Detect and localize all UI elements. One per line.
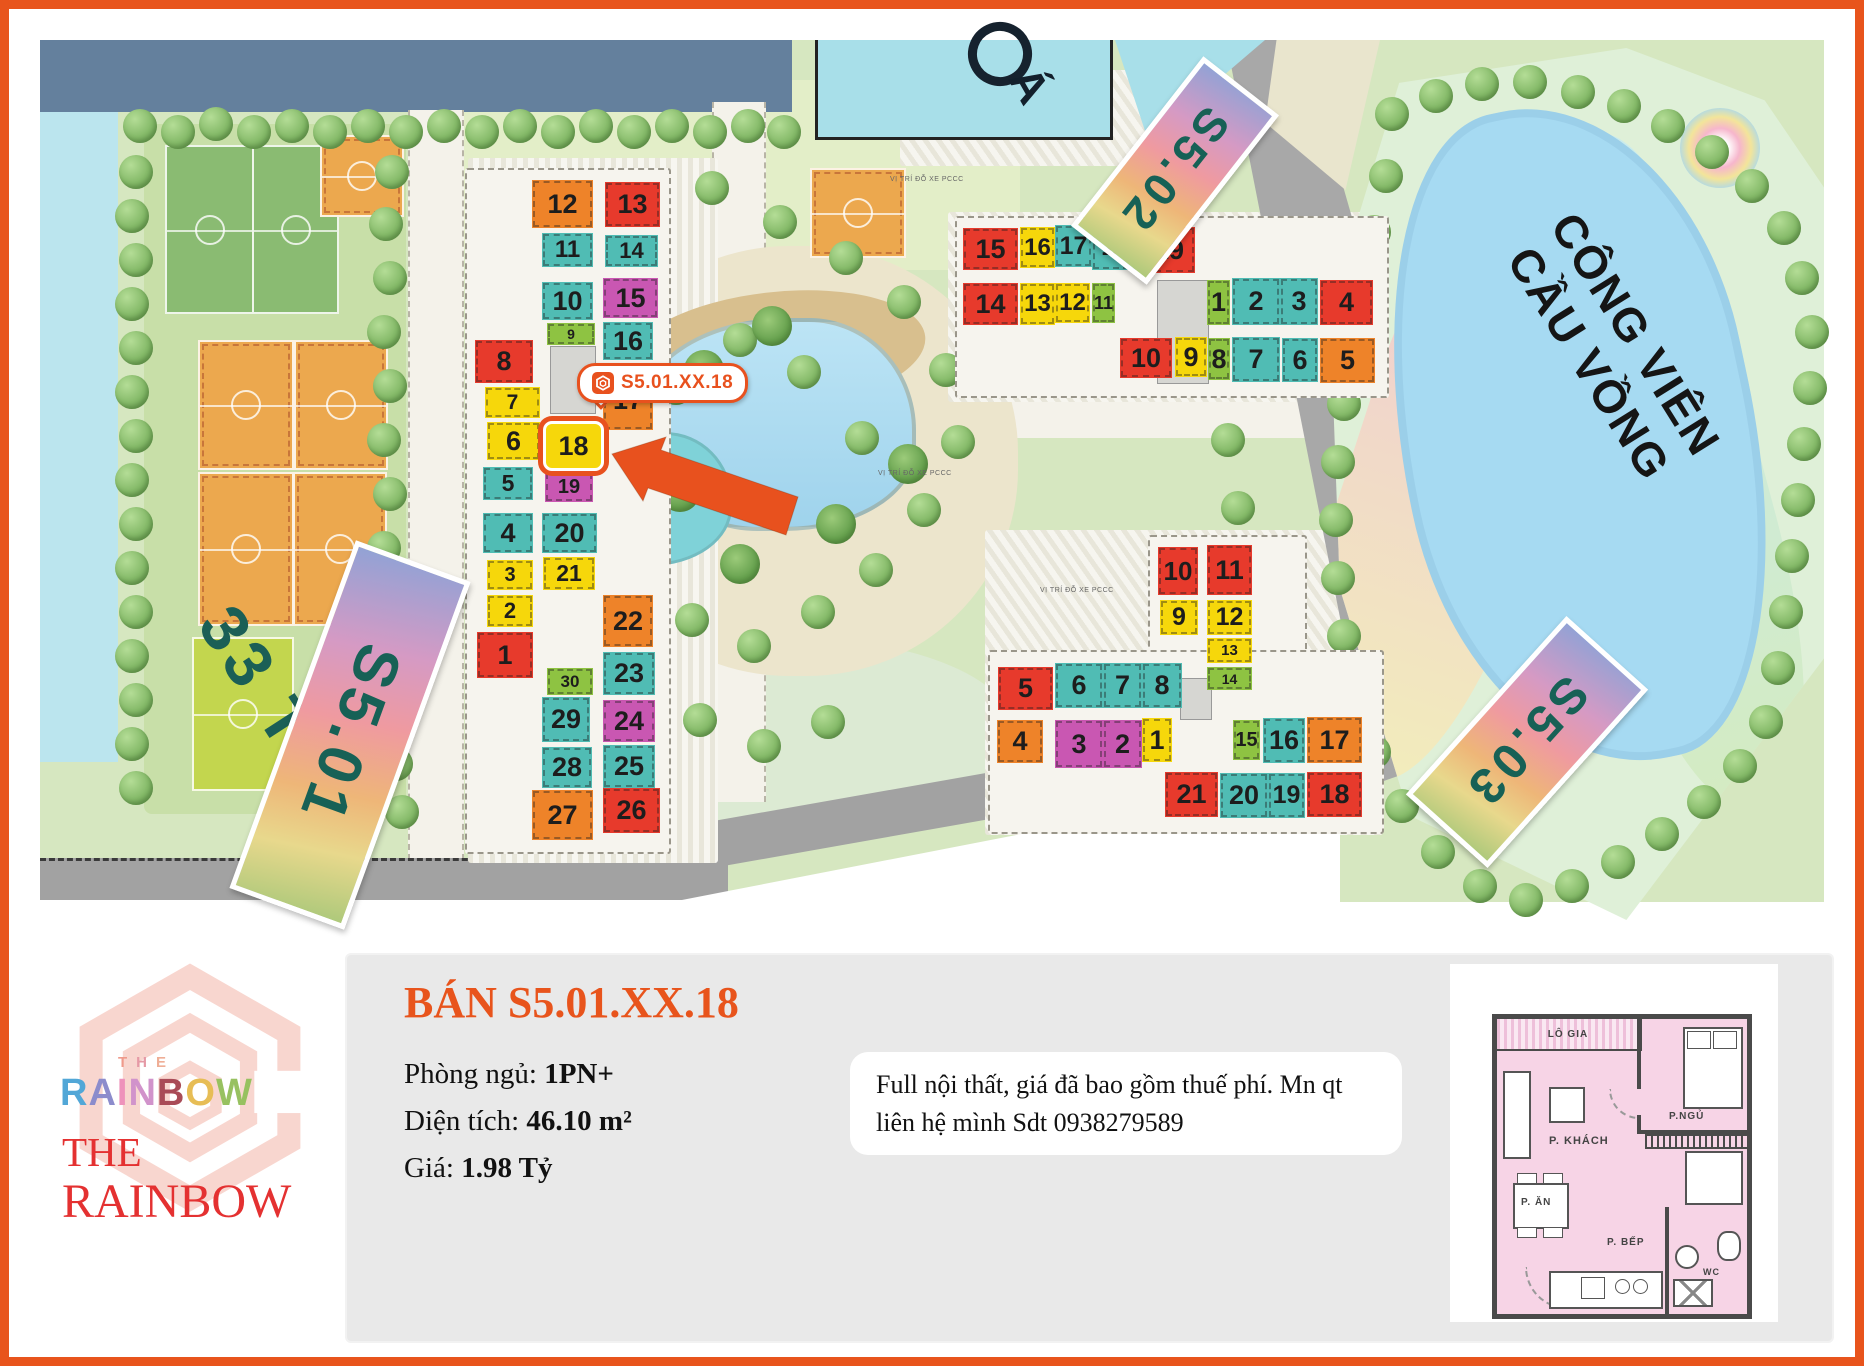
tree-icon	[1749, 705, 1783, 739]
tree-icon	[1421, 835, 1455, 869]
unit-S5.03-13[interactable]: 13	[1207, 638, 1252, 663]
listing-description: Full nội thất, giá đã bao gồm thuế phí. …	[850, 1052, 1402, 1155]
tree-icon	[1793, 371, 1827, 405]
tree-icon	[829, 241, 863, 275]
unit-S5.03-1[interactable]: 1	[1142, 718, 1172, 762]
unit-S5.01-8[interactable]: 8	[475, 340, 533, 383]
tree-icon	[1463, 869, 1497, 903]
wash-basin	[1675, 1245, 1699, 1269]
unit-S5.01-12[interactable]: 12	[532, 180, 593, 228]
tree-icon	[119, 243, 153, 277]
unit-S5.03-19[interactable]: 19	[1268, 773, 1305, 818]
pillow	[1687, 1031, 1711, 1049]
tree-icon	[1221, 491, 1255, 525]
spec-line: Giá: 1.98 Tỷ	[404, 1145, 632, 1192]
tree-icon	[115, 287, 149, 321]
shower-area	[1673, 1279, 1713, 1307]
room-label-living: P. KHÁCH	[1549, 1135, 1609, 1147]
tree-icon	[373, 261, 407, 295]
tree-icon	[1787, 427, 1821, 461]
tree-icon	[119, 419, 153, 453]
tree-icon	[1319, 503, 1353, 537]
tree-icon	[845, 421, 879, 455]
unit-S5.02-14[interactable]: 14	[963, 283, 1018, 325]
tree-icon	[237, 115, 271, 149]
unit-S5.01-6[interactable]: 6	[487, 422, 540, 460]
tree-icon	[369, 207, 403, 241]
unit-S5.01-16[interactable]: 16	[603, 322, 653, 360]
tree-icon	[579, 109, 613, 143]
pointer-arrow-icon	[602, 430, 802, 540]
tree-icon	[427, 109, 461, 143]
spec-value: 1.98 Tỷ	[461, 1152, 552, 1184]
tree-icon	[1761, 651, 1795, 685]
unit-S5.01-5[interactable]: 5	[483, 467, 533, 500]
unit-S5.03-9[interactable]: 9	[1160, 600, 1198, 635]
tree-icon	[1321, 445, 1355, 479]
tree-icon	[503, 109, 537, 143]
bottom-road	[40, 858, 728, 905]
unit-S5.01-4[interactable]: 4	[483, 513, 533, 553]
unit-S5.03-5[interactable]: 5	[998, 667, 1053, 710]
unit-S5.02-1[interactable]: 1	[1207, 280, 1230, 325]
tree-icon	[313, 115, 347, 149]
coffee-table	[1549, 1087, 1585, 1123]
tree-icon	[1767, 211, 1801, 245]
tree-icon	[115, 199, 149, 233]
sofa	[1503, 1071, 1531, 1159]
logo-letter: N	[128, 1072, 156, 1114]
tree-icon	[1465, 67, 1499, 101]
unit-S5.01-21[interactable]: 21	[543, 557, 595, 590]
tree-icon	[787, 355, 821, 389]
tree-icon	[1369, 159, 1403, 193]
unit-S5.03-14[interactable]: 14	[1207, 667, 1252, 690]
spec-value: 1PN+	[544, 1058, 614, 1090]
spec-line: Diện tích: 46.10 m²	[404, 1098, 632, 1145]
tree-icon	[123, 109, 157, 143]
palm-tree-icon	[816, 504, 856, 544]
tree-icon	[1513, 65, 1547, 99]
tree-icon	[675, 603, 709, 637]
toilet	[1717, 1231, 1741, 1261]
tree-icon	[1509, 883, 1543, 917]
unit-S5.03-8[interactable]: 8	[1142, 663, 1182, 708]
tree-icon	[1723, 749, 1757, 783]
logo-letter: T	[118, 1054, 136, 1071]
tree-icon	[1321, 561, 1355, 595]
tree-icon	[693, 115, 727, 149]
water-canal	[40, 112, 118, 762]
top-blue-bar	[40, 40, 792, 112]
unit-S5.02-8[interactable]: 8	[1208, 338, 1230, 380]
unit-S5.03-10[interactable]: 10	[1158, 547, 1198, 595]
rainbow-logo-icon	[592, 372, 614, 394]
tree-icon	[907, 493, 941, 527]
spec-line: Phòng ngủ: 1PN+	[404, 1051, 632, 1098]
floorplan-walls: LÔ GIA P. KHÁCH	[1492, 1014, 1752, 1319]
unit-S5.02-7[interactable]: 7	[1232, 337, 1280, 382]
tree-icon	[115, 551, 149, 585]
unit-S5.03-18[interactable]: 18	[1307, 772, 1362, 817]
tree-icon	[1735, 169, 1769, 203]
tree-icon	[1601, 845, 1635, 879]
unit-S5.02-5[interactable]: 5	[1320, 338, 1375, 383]
tree-icon	[887, 285, 921, 319]
unit-S5.01-25[interactable]: 25	[603, 745, 655, 788]
logo-letter: W	[216, 1072, 253, 1114]
tree-icon	[801, 595, 835, 629]
unit-S5.01-26[interactable]: 26	[603, 788, 660, 833]
unit-S5.03-2[interactable]: 2	[1103, 720, 1142, 768]
unit-S5.02-6[interactable]: 6	[1282, 338, 1318, 382]
logo-letter: R	[60, 1072, 88, 1114]
tree-icon	[115, 639, 149, 673]
tree-icon	[747, 729, 781, 763]
tree-icon	[737, 629, 771, 663]
unit-S5.01-24[interactable]: 24	[603, 700, 655, 742]
unit-S5.01-2[interactable]: 2	[487, 595, 533, 627]
tree-icon	[695, 171, 729, 205]
tree-icon	[1375, 97, 1409, 131]
unit-callout[interactable]: S5.01.XX.18	[577, 363, 748, 403]
unit-S5.03-6[interactable]: 6	[1055, 663, 1103, 708]
tree-icon	[115, 375, 149, 409]
unit-S5.01-10[interactable]: 10	[542, 282, 593, 320]
spec-label: Phòng ngủ:	[404, 1058, 544, 1090]
unit-S5.01-19[interactable]: 19	[545, 472, 593, 502]
tree-icon	[941, 425, 975, 459]
stove-burner	[1633, 1279, 1648, 1294]
unit-S5.01-23[interactable]: 23	[603, 652, 655, 695]
unit-S5.03-3[interactable]: 3	[1055, 720, 1103, 768]
unit-S5.03-4[interactable]: 4	[997, 720, 1043, 763]
tree-icon	[119, 771, 153, 805]
tree-icon	[1795, 315, 1829, 349]
balcony-area: LÔ GIA	[1497, 1019, 1642, 1051]
tree-icon	[161, 115, 195, 149]
tree-icon	[1327, 619, 1361, 653]
tree-icon	[1607, 89, 1641, 123]
unit-S5.03-12[interactable]: 12	[1207, 600, 1252, 635]
unit-S5.02-4[interactable]: 4	[1320, 280, 1373, 325]
room-label-bedroom: P.NGỦ	[1669, 1111, 1704, 1122]
tree-icon	[119, 595, 153, 629]
basketball-court	[198, 340, 294, 470]
tree-icon	[351, 109, 385, 143]
unit-S5.01-13[interactable]: 13	[605, 182, 660, 227]
clubhouse-pool: Á	[815, 40, 1113, 140]
logo-letter: B	[157, 1072, 185, 1114]
unit-S5.01-30[interactable]: 30	[547, 668, 593, 695]
spec-label: Giá:	[404, 1152, 461, 1184]
unit-S5.02-15[interactable]: 15	[963, 228, 1018, 270]
logo-letter: H	[136, 1054, 156, 1071]
tree-icon	[119, 683, 153, 717]
palm-tree-icon	[720, 544, 760, 584]
unit-S5.01-28[interactable]: 28	[542, 747, 592, 788]
sink	[1581, 1277, 1605, 1299]
tree-icon	[617, 115, 651, 149]
unit-S5.01-29[interactable]: 29	[542, 697, 590, 742]
listing-title: BÁN S5.01.XX.18	[404, 977, 739, 1028]
palm-tree-icon	[752, 306, 792, 346]
unit-S5.01-9[interactable]: 9	[547, 323, 595, 345]
tree-icon	[1555, 869, 1589, 903]
unit-S5.01-3[interactable]: 3	[487, 560, 533, 590]
road-label: VỊ TRÍ ĐỖ XE PCCC	[878, 470, 952, 477]
tree-icon	[811, 705, 845, 739]
tree-icon	[683, 703, 717, 737]
tree-icon	[541, 115, 575, 149]
unit-S5.01-22[interactable]: 22	[603, 595, 653, 647]
unit-S5.03-11[interactable]: 11	[1207, 545, 1252, 595]
unit-S5.02-11[interactable]: 11	[1092, 283, 1115, 323]
tree-icon	[373, 477, 407, 511]
room-label-wc: WC	[1703, 1267, 1720, 1277]
unit-S5.01-1[interactable]: 1	[477, 632, 533, 678]
tree-icon	[375, 155, 409, 189]
bedroom-railing	[1645, 1134, 1747, 1149]
tree-icon	[389, 115, 423, 149]
tree-icon	[1695, 135, 1729, 169]
logo-the-small: THE	[118, 1054, 175, 1071]
tree-icon	[373, 369, 407, 403]
unit-S5.02-16[interactable]: 16	[1020, 227, 1055, 268]
tree-icon	[199, 107, 233, 141]
tree-icon	[1769, 595, 1803, 629]
tree-icon	[275, 109, 309, 143]
tree-icon	[1781, 483, 1815, 517]
unit-S5.01-15[interactable]: 15	[603, 278, 658, 318]
unit-S5.02-12[interactable]: 12	[1055, 283, 1090, 323]
listing-panel: BÁN S5.01.XX.18 Phòng ngủ: 1PN+Diện tích…	[345, 953, 1834, 1343]
door-arc	[1609, 1089, 1639, 1119]
tree-icon	[767, 115, 801, 149]
spec-value: 46.10 m²	[526, 1105, 631, 1137]
logo-rainbow-word: RAINBOW	[60, 1072, 253, 1115]
tree-icon	[731, 109, 765, 143]
site-map: Á CÔNG VIÊN CẦU VỒNG VỊ TRÍ ĐỖ XE PCCC V…	[40, 40, 1824, 940]
listing-specs: Phòng ngủ: 1PN+Diện tích: 46.10 m²Giá: 1…	[404, 1051, 632, 1192]
unit-S5.03-15[interactable]: 15	[1233, 720, 1260, 760]
logo-letter: I	[117, 1072, 129, 1114]
map-edge	[40, 900, 740, 942]
unit-S5.02-13[interactable]: 13	[1020, 283, 1055, 325]
unit-S5.03-20[interactable]: 20	[1220, 773, 1268, 818]
palm-tree-icon	[888, 444, 928, 484]
tree-icon	[1775, 539, 1809, 573]
logo-letter: E	[156, 1054, 175, 1071]
tree-icon	[1651, 109, 1685, 143]
tree-icon	[763, 205, 797, 239]
unit-S5.01-7[interactable]: 7	[485, 387, 540, 418]
tennis-court	[165, 145, 254, 314]
room-label-kitchen: P. BẾP	[1607, 1237, 1645, 1248]
unit-S5.02-9[interactable]: 9	[1175, 337, 1207, 377]
tree-icon	[1645, 817, 1679, 851]
logo-the-serif: THE	[62, 1128, 142, 1176]
room-label-balcony: LÔ GIA	[1548, 1029, 1588, 1040]
tree-icon	[119, 507, 153, 541]
tree-icon	[1419, 79, 1453, 113]
tree-icon	[119, 331, 153, 365]
unit-S5.02-3[interactable]: 3	[1280, 278, 1318, 325]
road-label: VỊ TRÍ ĐỖ XE PCCC	[890, 176, 964, 183]
unit-S5.01-11[interactable]: 11	[542, 233, 593, 267]
bed-small	[1685, 1151, 1743, 1205]
callout-label: S5.01.XX.18	[621, 372, 733, 394]
rainbow-logo: THE RAINBOW THE RAINBOW	[52, 950, 332, 1260]
tree-icon	[655, 109, 689, 143]
tree-icon	[119, 155, 153, 189]
unit-S5.01-20[interactable]: 20	[542, 513, 597, 553]
room-label-dining: P. ĂN	[1521, 1197, 1551, 1208]
tree-icon	[859, 553, 893, 587]
tree-icon	[1561, 75, 1595, 109]
dining-chair	[1517, 1227, 1537, 1238]
spec-label: Diện tích:	[404, 1105, 526, 1137]
unit-S5.01-14[interactable]: 14	[605, 235, 658, 267]
road	[408, 110, 464, 860]
tree-icon	[367, 315, 401, 349]
unit-S5.03-7[interactable]: 7	[1103, 663, 1142, 708]
tree-icon	[115, 463, 149, 497]
unit-S5.01-18[interactable]: 18	[543, 421, 604, 471]
logo-letter: A	[88, 1072, 116, 1114]
unit-S5.03-16[interactable]: 16	[1263, 718, 1305, 763]
tree-icon	[115, 727, 149, 761]
unit-S5.03-17[interactable]: 17	[1307, 717, 1362, 763]
logo-rainbow-serif: RAINBOW	[62, 1174, 291, 1229]
tree-icon	[465, 115, 499, 149]
tree-icon	[1785, 261, 1819, 295]
unit-S5.03-21[interactable]: 21	[1165, 772, 1218, 817]
tree-icon	[367, 423, 401, 457]
stove-burner	[1615, 1279, 1630, 1294]
tree-icon	[1687, 785, 1721, 819]
pillow	[1713, 1031, 1737, 1049]
floorplan: LÔ GIA P. KHÁCH	[1450, 964, 1778, 1322]
unit-S5.02-2[interactable]: 2	[1232, 278, 1280, 325]
logo-letter: O	[185, 1072, 216, 1114]
unit-S5.01-27[interactable]: 27	[532, 790, 593, 840]
road-label: VỊ TRÍ ĐỖ XE PCCC	[1040, 587, 1114, 594]
tree-icon	[1211, 423, 1245, 457]
unit-S5.02-10[interactable]: 10	[1120, 338, 1172, 378]
dining-chair	[1543, 1227, 1563, 1238]
